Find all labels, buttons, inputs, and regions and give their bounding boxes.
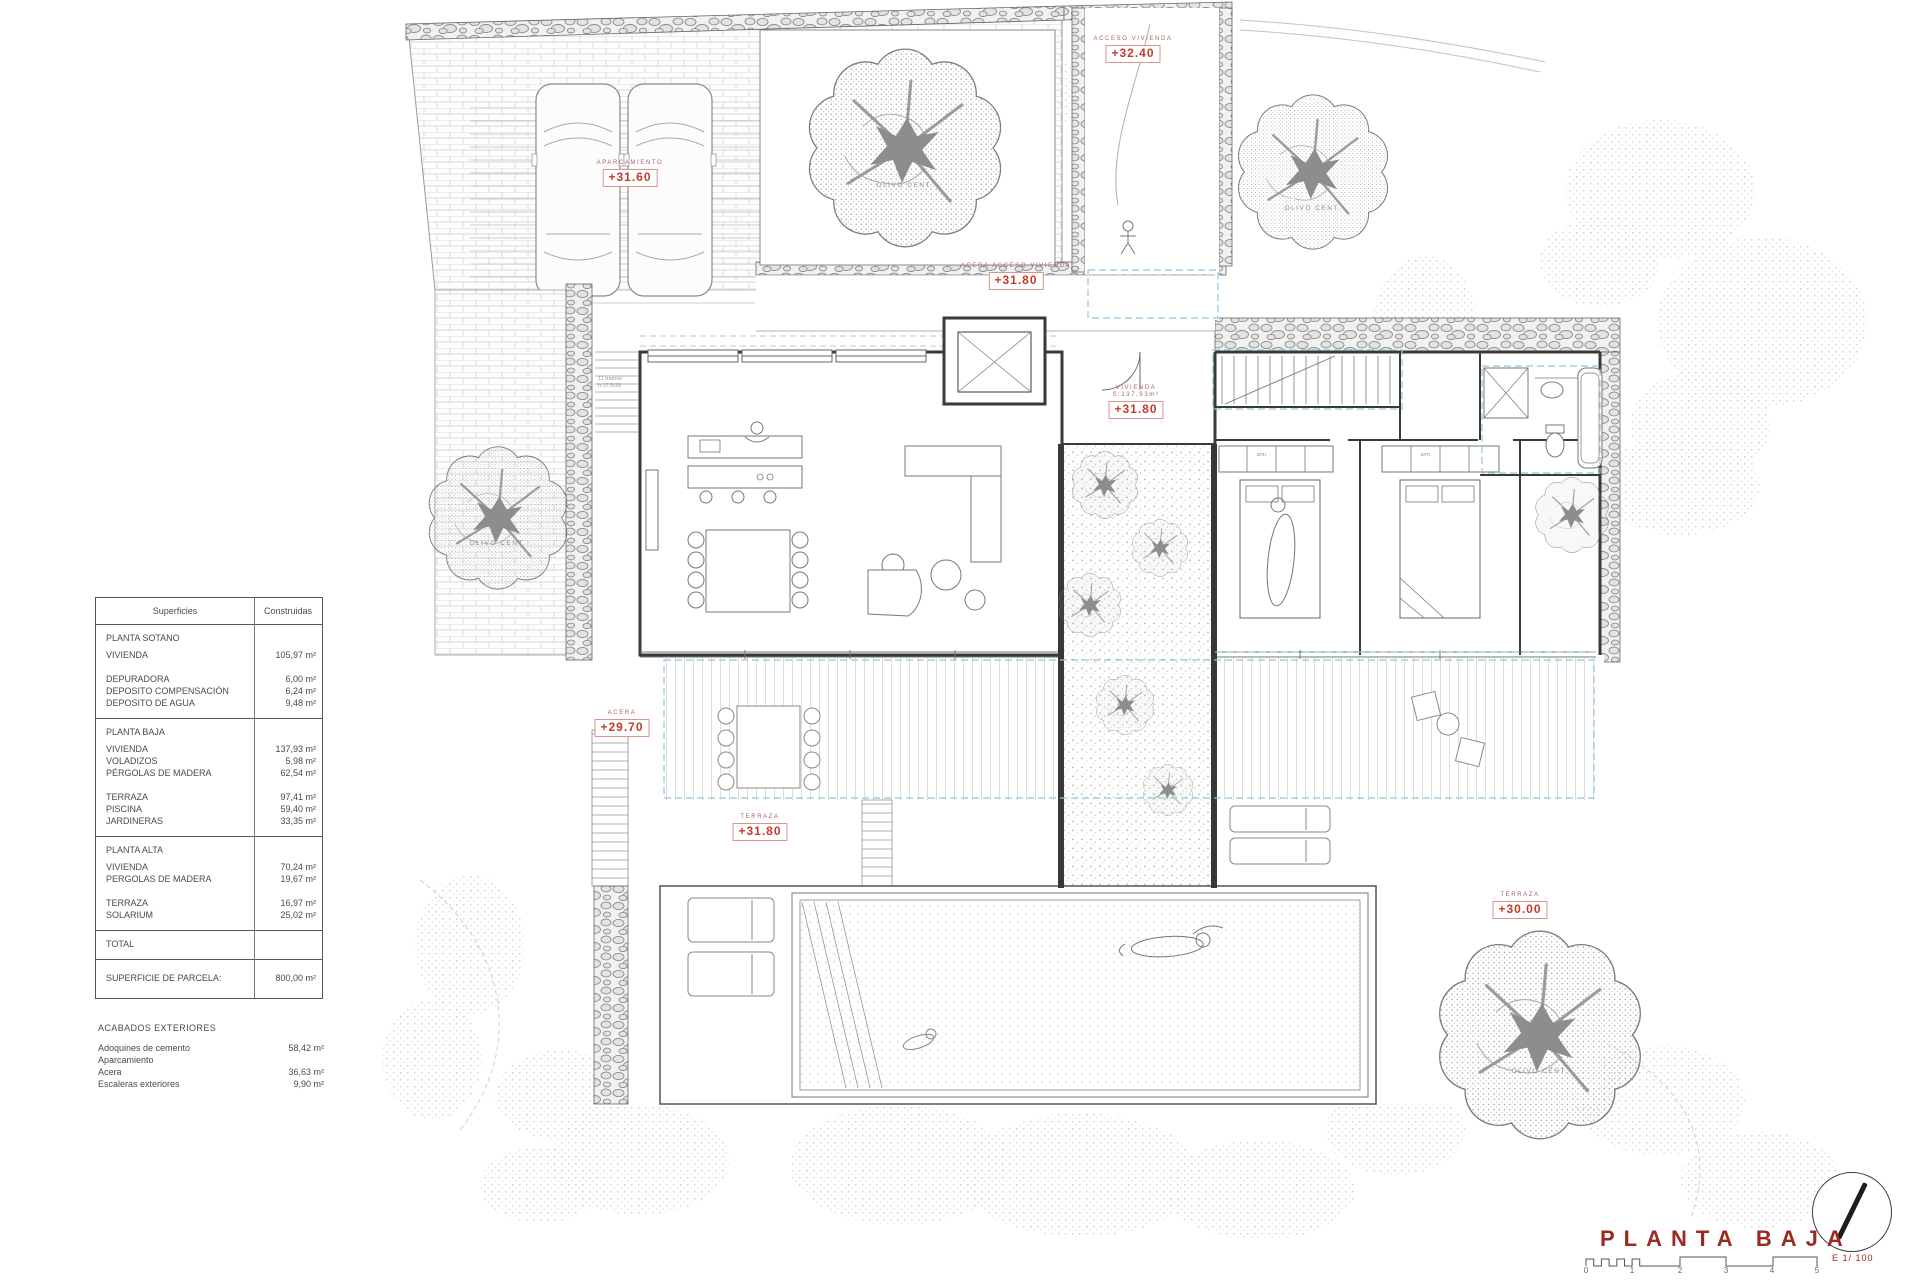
scale-tick: 3 — [1724, 1266, 1728, 1275]
closet-label: arm. — [1257, 452, 1268, 459]
table-row: VIVIENDA137,93 m² — [96, 743, 322, 755]
level-marker-acera-acceso: ACERA ACCESO VIVIENDA +31.80 — [961, 263, 1071, 290]
section-parcela: SUPERFICIE DE PARCELA:800,00 m² — [96, 959, 322, 998]
level-value: +32.40 — [1105, 45, 1160, 63]
table-row: JARDINERAS33,35 m² — [96, 815, 322, 827]
floor-plan-sheet: APARCAMIENTO +31.60 ACCESO VIVIENDA +32.… — [0, 0, 1920, 1280]
table-row: DEPOSITO DE AGUA9,48 m² — [96, 697, 322, 709]
pool-area — [660, 886, 1376, 1104]
scale-tick: 1 — [1630, 1266, 1634, 1275]
olive-tree-label: OLIVO CENT. — [877, 182, 934, 189]
section-heading: PLANTA SOTANO — [96, 632, 254, 644]
pool-water — [800, 900, 1360, 1090]
table-row: TERRAZA16,97 m² — [96, 897, 322, 909]
scale-tick: 4 — [1770, 1266, 1774, 1275]
level-marker-vivienda: VIVIENDA S:137,93m² +31.80 — [1108, 385, 1163, 419]
level-area-detail: S:137,93m² — [1108, 392, 1163, 399]
level-marker-acera: ACERA +29.70 — [594, 710, 649, 737]
section-planta-baja: PLANTA BAJA VIVIENDA137,93 m² VOLADIZOS5… — [96, 718, 322, 836]
areas-table-header: Superficies Construidas — [96, 598, 322, 625]
dining-table — [688, 530, 808, 612]
graphic-scale-bar — [1586, 1257, 1818, 1266]
section-planta-alta: PLANTA ALTA VIVIENDA70,24 m² PERGOLAS DE… — [96, 836, 322, 930]
level-area-label: ACERA — [594, 710, 649, 717]
sheet-title: PLANTA BAJA — [1600, 1226, 1852, 1252]
section-heading: PLANTA ALTA — [96, 844, 254, 856]
level-marker-terraza-piscina: TERRAZA +30.00 — [1492, 892, 1547, 919]
table-row: PÉRGOLAS DE MADERA62,54 m² — [96, 767, 322, 779]
table-row: Escaleras exteriores9,90 m² — [98, 1078, 330, 1090]
table-row: VIVIENDA105,97 m² — [96, 649, 322, 661]
level-area-label: ACCESO VIVIENDA — [1093, 36, 1172, 43]
table-row: SOLARIUM25,02 m² — [96, 909, 322, 921]
table-row: DEPURADORA6,00 m² — [96, 673, 322, 685]
table-row: VIVIENDA70,24 m² — [96, 861, 322, 873]
sink — [1541, 382, 1563, 398]
table-row: TERRAZA97,41 m² — [96, 791, 322, 803]
col-header-construidas: Construidas — [254, 605, 322, 617]
table-row: VOLADIZOS5,98 m² — [96, 755, 322, 767]
level-value: +31.60 — [602, 169, 657, 187]
wood-deck-right — [1217, 658, 1596, 800]
table-row: Acera36,63 m² — [98, 1066, 330, 1078]
level-area-label: TERRAZA — [1492, 892, 1547, 899]
grand-piano — [868, 570, 921, 616]
scale-text: E 1/ 100 — [1832, 1253, 1874, 1263]
stair-note-line1: 11 tramos — [598, 376, 622, 383]
olive-tree-label: OLIVO CENT. — [470, 540, 527, 547]
scale-tick: 0 — [1584, 1266, 1588, 1275]
scale-tick: 2 — [1678, 1266, 1682, 1275]
level-marker-acceso: ACCESO VIVIENDA +32.40 — [1093, 36, 1172, 63]
acabados-exteriores: ACABADOS EXTERIORES Adoquines de cemento… — [98, 1022, 330, 1090]
acabados-heading: ACABADOS EXTERIORES — [98, 1022, 330, 1034]
table-row: SUPERFICIE DE PARCELA:800,00 m² — [96, 972, 322, 984]
section-total: TOTAL — [96, 930, 322, 959]
level-value: +29.70 — [594, 719, 649, 737]
table-row: PERGOLAS DE MADERA19,67 m² — [96, 873, 322, 885]
level-marker-aparcamiento: APARCAMIENTO +31.60 — [597, 160, 664, 187]
level-marker-terraza: TERRAZA +31.80 — [732, 814, 787, 841]
sliding-doors-top — [648, 350, 926, 362]
olive-tree-label: OLIVO CENT. — [1285, 205, 1342, 212]
closet-label: arm. — [1421, 452, 1432, 459]
terrace-stairs — [862, 800, 892, 886]
level-area-label: ACERA ACCESO VIVIENDA — [961, 263, 1071, 270]
section-planta-sotano: PLANTA SOTANO VIVIENDA105,97 m² DEPURADO… — [96, 625, 322, 718]
level-value: +31.80 — [988, 272, 1043, 290]
level-area-label: VIVIENDA — [1108, 385, 1163, 392]
table-row: DEPOSITO COMPENSACIÓN6,24 m² — [96, 685, 322, 697]
level-area-label: TERRAZA — [732, 814, 787, 821]
level-area-label: APARCAMIENTO — [597, 160, 664, 167]
table-row: Adoquines de cemento Aparcamiento58,42 m… — [98, 1042, 330, 1066]
level-value: +31.80 — [732, 823, 787, 841]
stair-note: 11 tramos h:17,5/28 — [598, 376, 622, 389]
toilet — [1546, 425, 1564, 433]
areas-table: Superficies Construidas PLANTA SOTANO VI… — [95, 597, 323, 999]
level-value: +31.80 — [1108, 401, 1163, 419]
col-header-superficies: Superficies — [96, 605, 254, 617]
stair-note-line2: h:17,5/28 — [598, 383, 622, 390]
olive-tree-label: OLIVO CENT. — [1512, 1068, 1569, 1075]
section-heading: PLANTA BAJA — [96, 726, 254, 738]
table-row: PISCINA59,40 m² — [96, 803, 322, 815]
scale-tick: 5 — [1815, 1266, 1819, 1275]
total-label: TOTAL — [96, 938, 254, 950]
elevator — [944, 318, 1045, 404]
level-value: +30.00 — [1492, 901, 1547, 919]
